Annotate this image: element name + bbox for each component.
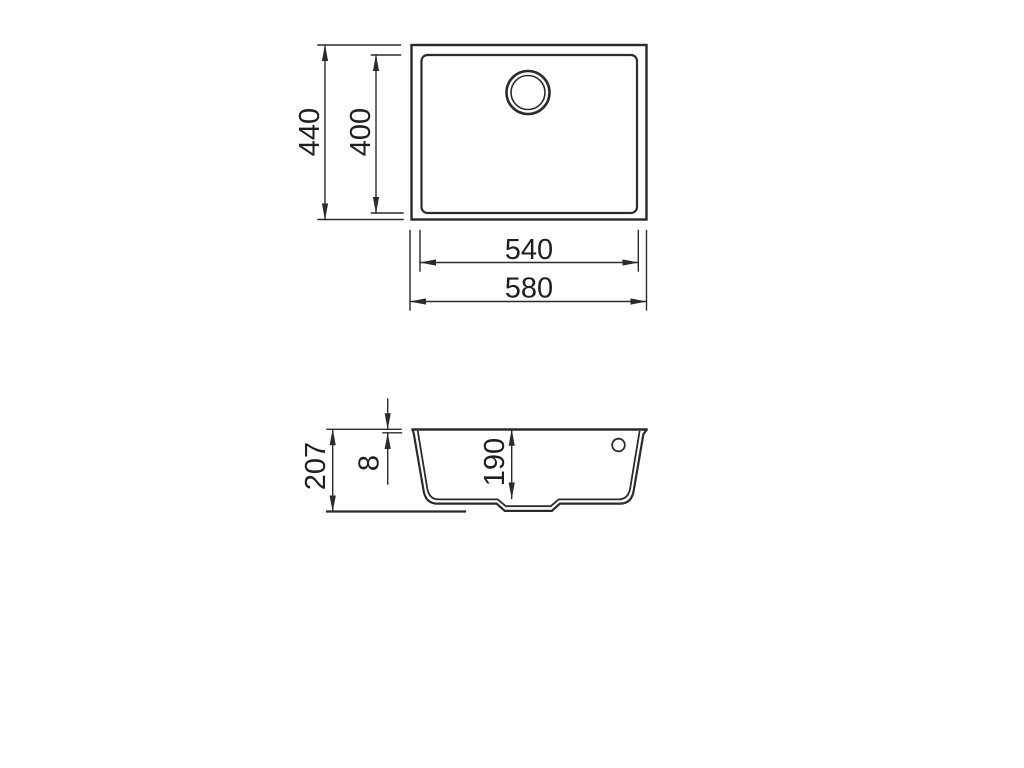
dim-label-rim-thickness: 8	[354, 455, 386, 471]
drawing-page: 440 400 540 580	[0, 0, 1024, 768]
overflow-hole	[612, 439, 625, 452]
technical-drawing: 440 400 540 580	[0, 0, 1024, 768]
dim-label-inner-height: 400	[345, 108, 377, 156]
section-inner-profile	[418, 432, 640, 506]
dim-label-bowl-depth: 190	[479, 438, 511, 486]
dim-label-outer-width: 580	[505, 273, 553, 305]
dim-label-outer-height: 440	[294, 108, 326, 156]
section-view: 207 8 190	[300, 399, 647, 512]
drain-circle-inner	[511, 76, 545, 110]
dim-label-inner-width: 540	[505, 234, 553, 266]
plan-view: 440 400 540 580	[294, 45, 647, 310]
dimension-rim-thickness	[383, 399, 402, 484]
dim-label-overall-height: 207	[300, 442, 332, 490]
plan-bowl-outline	[422, 55, 638, 213]
drain-circle-outer	[507, 71, 550, 114]
